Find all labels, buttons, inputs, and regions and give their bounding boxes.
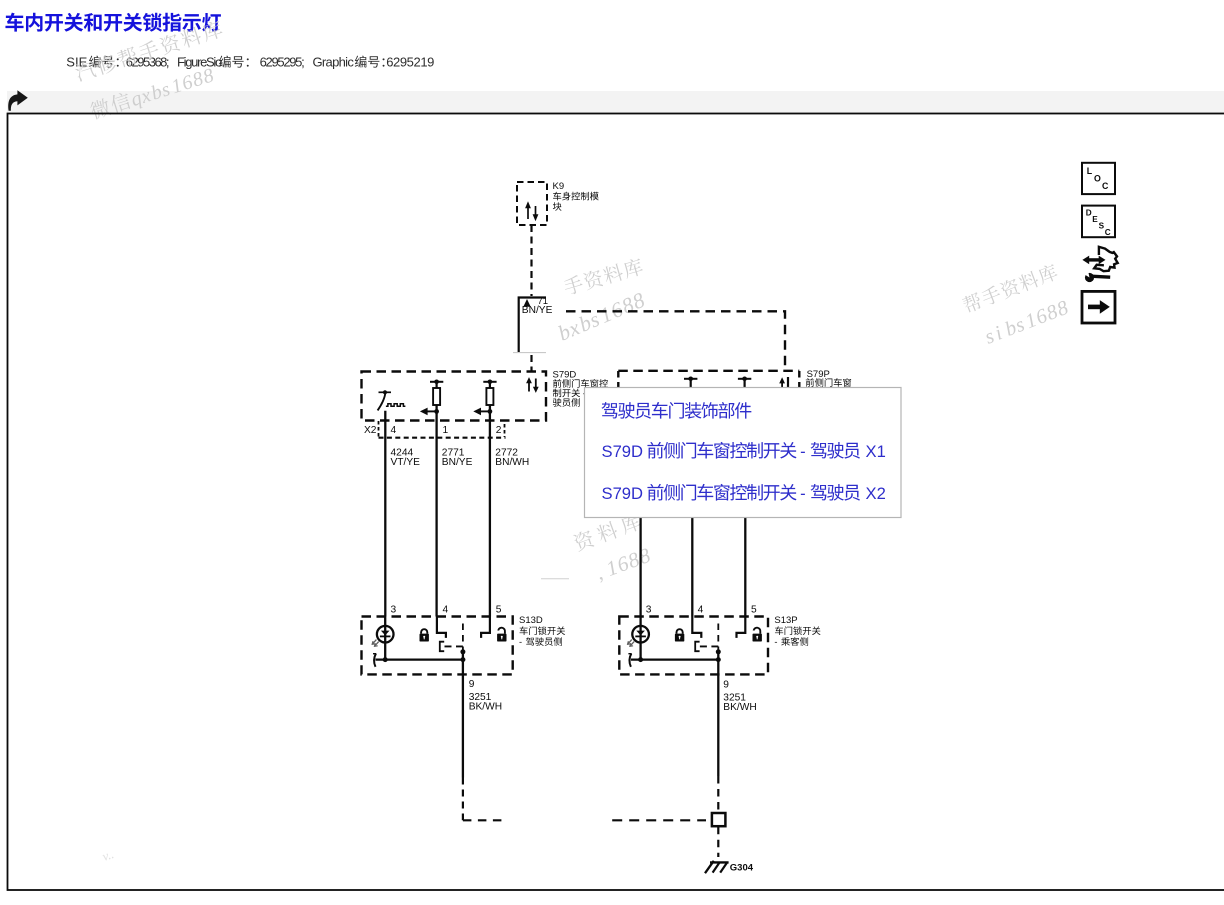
svg-text:S79D: S79D (602, 484, 644, 503)
svg-text:BN/WH: BN/WH (495, 457, 529, 468)
svg-text:C: C (1102, 181, 1109, 191)
svg-text:-: - (519, 637, 522, 647)
svg-text:K9: K9 (553, 181, 565, 192)
svg-text:E: E (1092, 215, 1098, 224)
svg-text:L: L (1087, 166, 1093, 176)
svg-text:6295219: 6295219 (386, 55, 434, 70)
svg-text:S: S (1099, 221, 1105, 230)
svg-text:BK/WH: BK/WH (723, 702, 756, 713)
svg-text:-: - (774, 637, 777, 647)
svg-text:O: O (1094, 174, 1101, 184)
svg-text:X1: X1 (866, 442, 886, 461)
svg-text:S79D: S79D (553, 369, 577, 380)
svg-text:D: D (1086, 208, 1092, 217)
svg-text:9: 9 (469, 679, 475, 690)
svg-text:4: 4 (443, 604, 449, 615)
svg-text:Graphic: Graphic (313, 55, 355, 70)
svg-text:,: , (593, 560, 606, 584)
svg-text:X2: X2 (866, 484, 886, 503)
svg-text:4: 4 (698, 604, 704, 615)
svg-text:-: - (800, 442, 806, 461)
svg-text:4: 4 (391, 425, 397, 436)
svg-text:BN/YE: BN/YE (442, 457, 473, 468)
svg-text:X2: X2 (364, 425, 377, 436)
svg-text:1: 1 (443, 425, 449, 436)
svg-text:G304: G304 (730, 863, 754, 874)
svg-text:5: 5 (496, 604, 502, 615)
svg-text:VT/YE: VT/YE (391, 457, 421, 468)
svg-text:6295295;: 6295295; (260, 55, 305, 70)
svg-text:2: 2 (496, 425, 502, 436)
svg-text:3: 3 (391, 604, 397, 615)
svg-text:C: C (1105, 228, 1111, 237)
svg-text:S13D: S13D (519, 615, 543, 626)
svg-text:9: 9 (723, 680, 729, 691)
svg-text:BK/WH: BK/WH (469, 702, 502, 713)
svg-text:6295368;: 6295368; (126, 55, 169, 70)
svg-text:S79D: S79D (602, 442, 644, 461)
svg-text:5: 5 (751, 604, 757, 615)
svg-text:S79P: S79P (807, 369, 830, 380)
svg-text:BN/YE: BN/YE (522, 305, 553, 316)
svg-text:-: - (800, 484, 806, 503)
svg-text:3: 3 (646, 604, 652, 615)
svg-text:S13P: S13P (774, 615, 797, 626)
svg-text:v..: v.. (100, 846, 115, 864)
